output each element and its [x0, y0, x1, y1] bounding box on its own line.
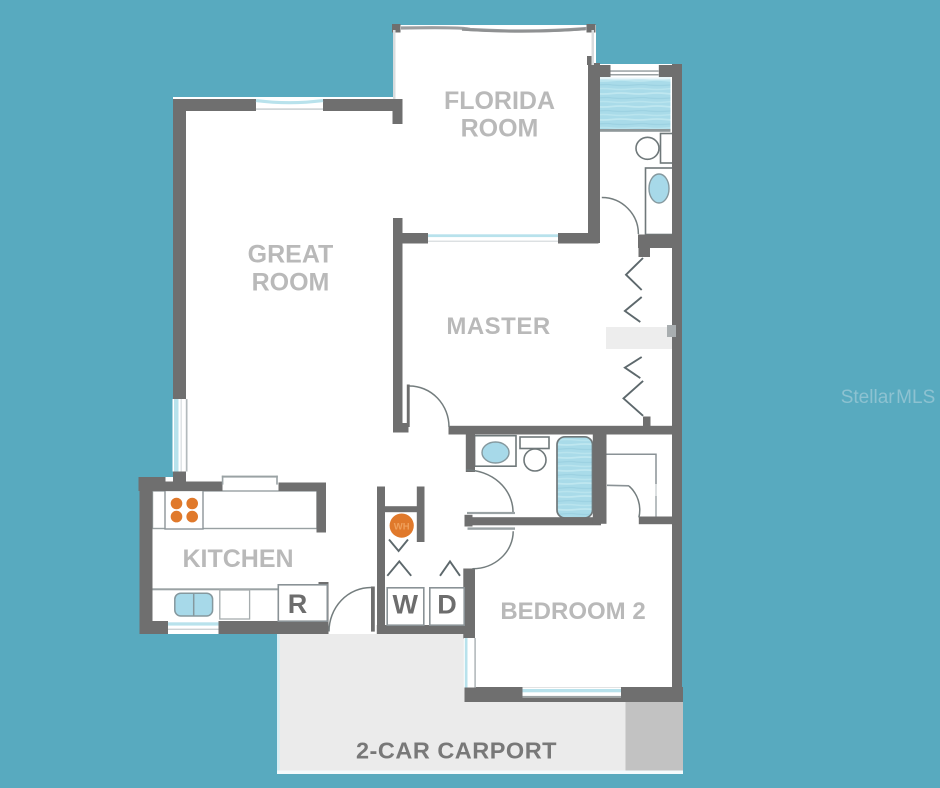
svg-text:MASTER: MASTER [446, 313, 550, 340]
svg-text:GREAT: GREAT [248, 241, 334, 269]
svg-text:WH: WH [394, 521, 410, 532]
svg-text:KITCHEN: KITCHEN [182, 545, 293, 573]
svg-text:ROOM: ROOM [461, 115, 539, 143]
svg-text:2-CAR CARPORT: 2-CAR CARPORT [356, 738, 557, 764]
svg-text:ROOM: ROOM [252, 268, 330, 296]
svg-text:D: D [437, 590, 457, 620]
svg-text:BEDROOM 2: BEDROOM 2 [500, 598, 645, 625]
svg-text:Stellar MLS: Stellar MLS [841, 387, 936, 408]
svg-text:FLORIDA: FLORIDA [444, 87, 555, 115]
svg-text:R: R [288, 589, 308, 619]
svg-text:W: W [393, 590, 419, 620]
